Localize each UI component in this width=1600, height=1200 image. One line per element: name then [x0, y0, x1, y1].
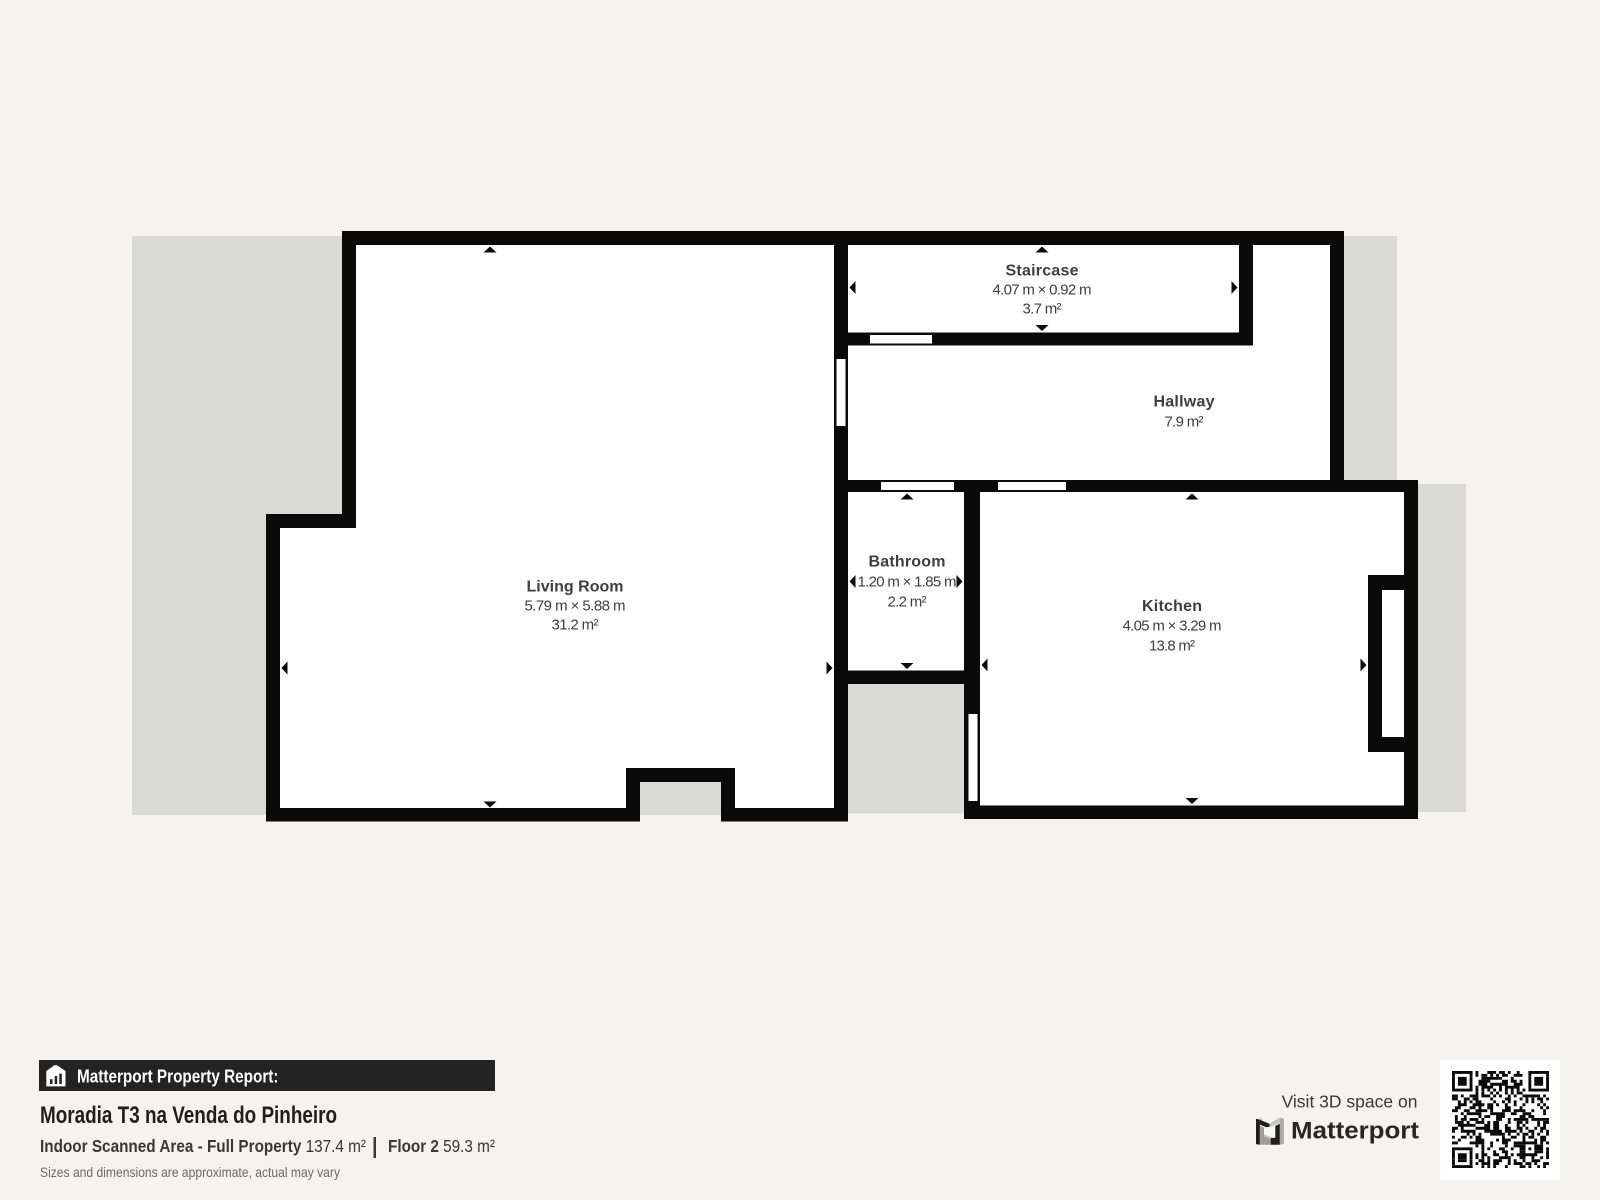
svg-text:Moradia T3 na Venda do Pinheir: Moradia T3 na Venda do Pinheiro	[40, 1102, 337, 1129]
svg-text:3.7 m²: 3.7 m²	[1023, 301, 1062, 318]
svg-text:Matterport: Matterport	[1291, 1118, 1419, 1145]
svg-text:Staircase: Staircase	[1006, 263, 1079, 280]
svg-text:4.05 m × 3.29 m: 4.05 m × 3.29 m	[1123, 618, 1222, 635]
svg-text:1.20 m × 1.85 m: 1.20 m × 1.85 m	[858, 574, 957, 591]
svg-text:2.2 m²: 2.2 m²	[888, 594, 927, 611]
svg-text:7.9 m²: 7.9 m²	[1165, 414, 1204, 431]
svg-text:Matterport Property Report:: Matterport Property Report:	[77, 1067, 279, 1087]
svg-text:Sizes and dimensions are appro: Sizes and dimensions are approximate, ac…	[40, 1164, 340, 1180]
svg-text:31.2 m²: 31.2 m²	[552, 617, 599, 634]
svg-text:Floor 2 59.3 m²: Floor 2 59.3 m²	[388, 1136, 495, 1156]
svg-text:Living Room: Living Room	[527, 579, 624, 596]
svg-text:4.07 m × 0.92 m: 4.07 m × 0.92 m	[993, 282, 1092, 299]
svg-text:Kitchen: Kitchen	[1142, 598, 1202, 615]
svg-text:13.8 m²: 13.8 m²	[1149, 638, 1195, 655]
svg-text:Bathroom: Bathroom	[869, 554, 946, 571]
svg-text:Visit 3D space on: Visit 3D space on	[1282, 1091, 1418, 1111]
svg-text:Hallway: Hallway	[1154, 394, 1215, 411]
svg-text:Indoor Scanned Area - Full Pro: Indoor Scanned Area - Full Property 137.…	[40, 1136, 366, 1156]
svg-text:5.79 m × 5.88 m: 5.79 m × 5.88 m	[525, 598, 626, 615]
